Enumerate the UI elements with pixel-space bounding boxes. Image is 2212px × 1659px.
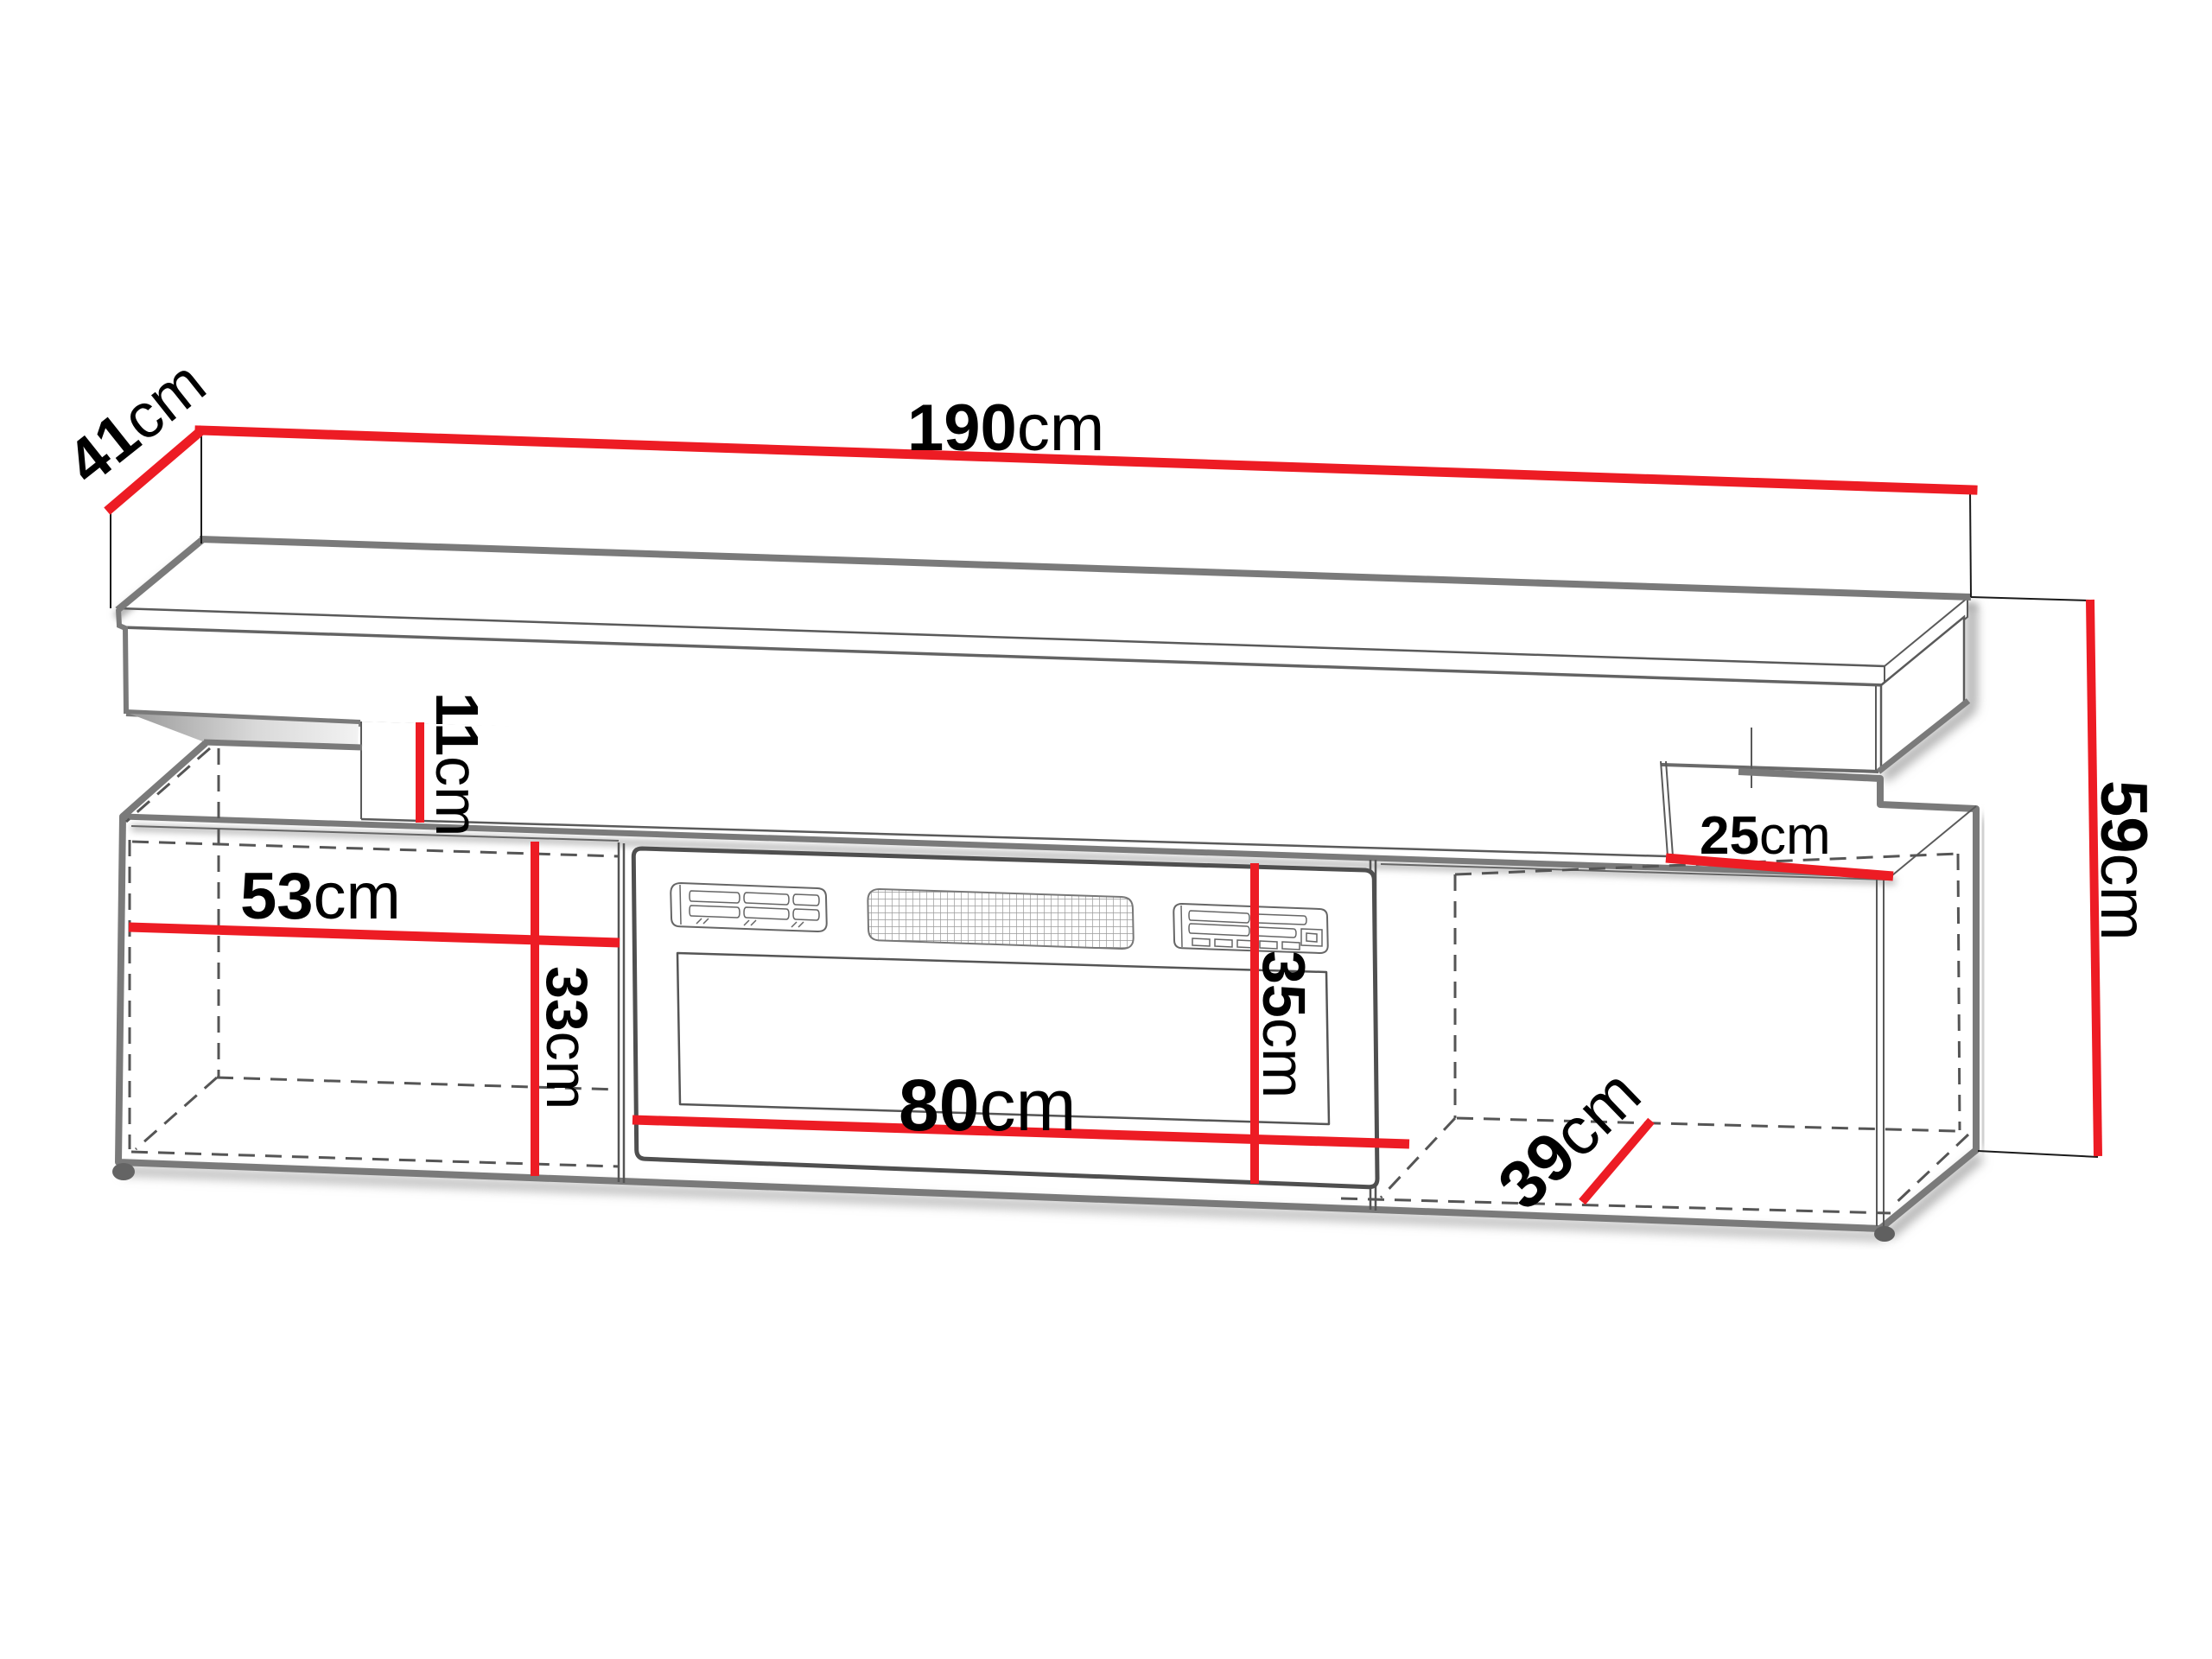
svg-text:53cm: 53cm [240,860,401,933]
svg-text:25cm: 25cm [1700,806,1831,866]
svg-text:80cm: 80cm [899,1065,1076,1146]
svg-text:190cm: 190cm [907,391,1104,465]
svg-text:59cm: 59cm [2087,780,2160,941]
svg-text:11cm: 11cm [423,692,491,836]
svg-text:33cm: 33cm [534,966,600,1109]
svg-text:35cm: 35cm [1250,950,1318,1098]
